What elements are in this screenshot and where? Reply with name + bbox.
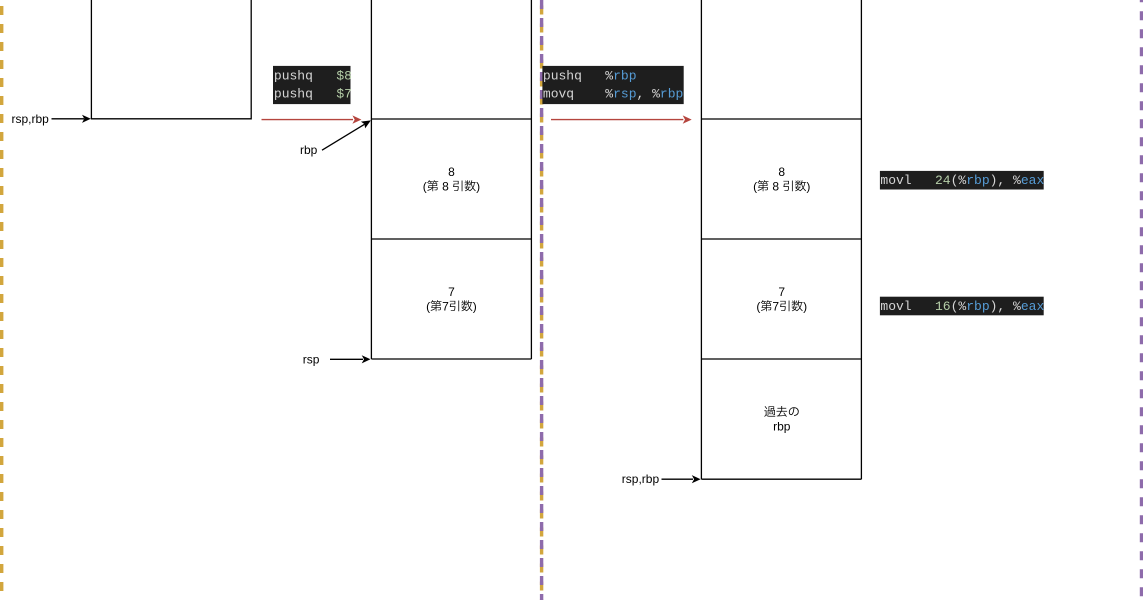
svg-text:(: ( (423, 179, 427, 193)
svg-text:(: ( (753, 179, 757, 193)
svg-text:): ) (473, 299, 477, 313)
svg-text:pushq %rbp: pushq %rbp (543, 68, 637, 83)
svg-text:rbp: rbp (773, 420, 791, 434)
svg-text:8: 8 (439, 179, 452, 193)
svg-text:pushq $8: pushq $8 (274, 68, 352, 83)
svg-text:8: 8 (778, 165, 785, 179)
svg-text:(: ( (756, 299, 760, 313)
svg-text:rbp: rbp (300, 143, 318, 157)
svg-text:pushq $7: pushq $7 (274, 87, 352, 102)
svg-text:8: 8 (769, 179, 782, 193)
svg-text:movq %rsp, %rbp: movq %rsp, %rbp (543, 87, 683, 102)
svg-text:rsp,rbp: rsp,rbp (12, 112, 50, 126)
svg-text:): ) (803, 299, 807, 313)
svg-text:): ) (476, 179, 480, 193)
svg-text:7: 7 (448, 285, 455, 299)
svg-text:): ) (806, 179, 810, 193)
svg-text:7: 7 (442, 299, 449, 313)
svg-text:7: 7 (778, 285, 785, 299)
svg-text:movl 16(%rbp), %eax: movl 16(%rbp), %eax (880, 299, 1044, 314)
svg-text:rsp,rbp: rsp,rbp (622, 472, 660, 486)
svg-text:rsp: rsp (303, 352, 320, 366)
svg-text:movl 24(%rbp), %eax: movl 24(%rbp), %eax (880, 173, 1044, 188)
svg-text:8: 8 (448, 165, 455, 179)
svg-text:7: 7 (772, 299, 779, 313)
svg-text:(: ( (426, 299, 430, 313)
